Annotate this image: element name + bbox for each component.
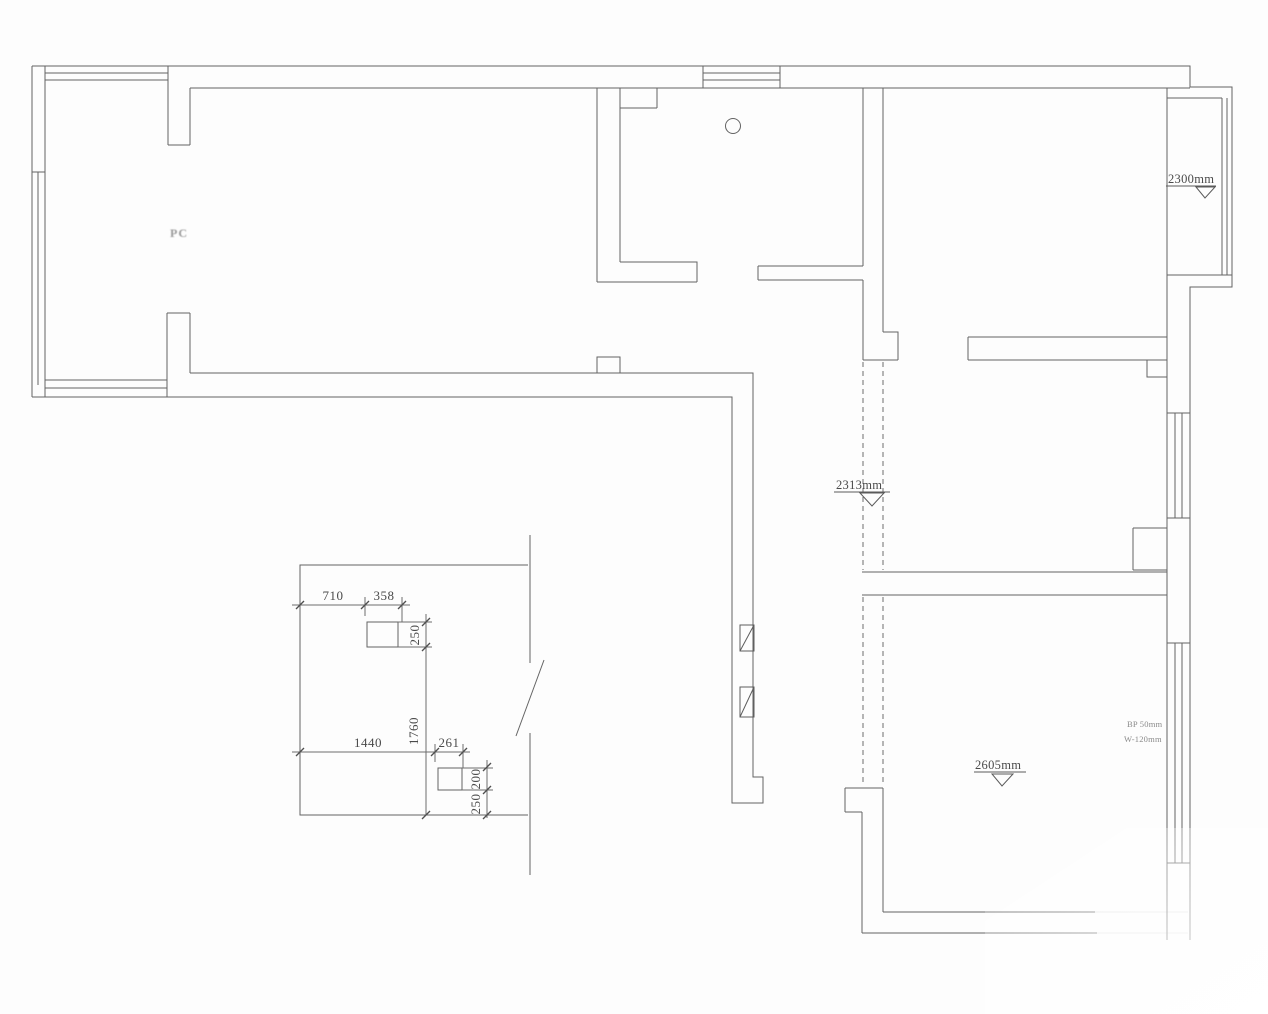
floor-plan-svg: 710 358 250 1760 1440 261 200 250 2300mm… — [0, 0, 1268, 1014]
bath-right-wall-foot — [863, 332, 898, 360]
bottom-room-pier — [845, 788, 883, 933]
detail-box-2 — [438, 768, 462, 790]
dim-200: 200 — [468, 769, 483, 790]
outer-bottom-and-corridor-wall — [32, 373, 763, 803]
watermark-fade — [985, 828, 1268, 1014]
level-marker-icon — [860, 493, 884, 506]
switch-box-diagonal — [740, 625, 754, 651]
floor-plan-canvas: 710 358 250 1760 1440 261 200 250 2300mm… — [0, 0, 1268, 1014]
dim-261: 261 — [439, 735, 460, 750]
middle-room-column — [1133, 528, 1167, 570]
detail-box-1 — [367, 622, 398, 647]
living-bath-divider — [597, 88, 620, 282]
outer-top-wall — [32, 66, 1232, 940]
top-window — [703, 66, 780, 88]
elevation-markers: 2300mm 2313mm 2605mm — [834, 172, 1216, 786]
elevation-label: 2300mm — [1168, 172, 1214, 186]
bottomleft-window-glazing — [45, 380, 167, 388]
window-note: BP 50mm W-120mm — [1124, 719, 1163, 744]
dimension-lines — [292, 597, 493, 818]
dim-1760: 1760 — [406, 717, 421, 745]
elevation-label: 2605mm — [975, 758, 1021, 772]
elevation-label: 2313mm — [836, 478, 882, 492]
note-line-1: BP 50mm — [1127, 719, 1163, 729]
level-marker-icon — [992, 774, 1013, 786]
note-line-2: W-120mm — [1124, 734, 1162, 744]
switch-box-diagonal — [740, 687, 754, 717]
topleft-window-glazing — [45, 73, 168, 80]
topright-room-bottom-wall — [968, 337, 1167, 360]
bath-right-wall — [863, 88, 883, 360]
lamp-icon — [726, 119, 741, 134]
break-line — [516, 535, 544, 875]
middle-bottom-wall — [862, 572, 1167, 595]
bottomleft-pier — [167, 313, 190, 397]
dim-1440: 1440 — [354, 735, 382, 750]
right-balcony-bay — [1167, 88, 1232, 940]
dashed-wall-lines — [863, 362, 883, 786]
topleft-pier — [168, 66, 190, 145]
wall-linework — [32, 66, 1232, 940]
dim-250-lower: 250 — [468, 794, 483, 815]
topright-room-notch — [1147, 360, 1167, 377]
bathroom-duct — [620, 88, 657, 108]
corridor-top-bump — [597, 357, 620, 373]
bathroom-door-jamb-left — [597, 262, 697, 282]
level-marker-icon — [1196, 187, 1215, 198]
dim-358: 358 — [374, 588, 395, 603]
dim-250-upper: 250 — [407, 625, 422, 646]
detail-block: 710 358 250 1760 1440 261 200 250 — [292, 535, 544, 875]
corridor-switch-boxes — [740, 625, 754, 717]
elevation-2300: 2300mm — [1166, 172, 1216, 198]
dim-710: 710 — [323, 588, 344, 603]
elevation-2313: 2313mm — [834, 478, 890, 506]
elevation-2605: 2605mm — [974, 758, 1026, 786]
room-label: PC — [170, 226, 188, 240]
middle-room-window — [1167, 413, 1190, 518]
bathroom-door-jamb-right — [758, 266, 863, 280]
